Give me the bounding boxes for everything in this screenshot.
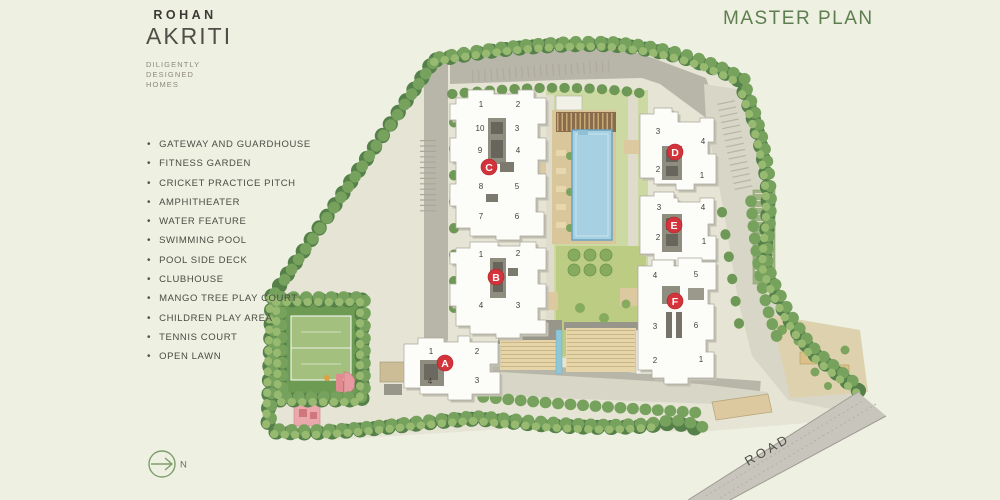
unit-number: 3 [657, 203, 662, 212]
unit-number: 10 [476, 124, 485, 133]
unit-number: 5 [515, 182, 520, 191]
building-marker-b: B [488, 269, 504, 285]
unit-number: 1 [699, 355, 704, 364]
unit-number: 4 [428, 377, 433, 386]
brand-logo: ROHAN AKRITI DILIGENTLY DESIGNED HOMES [146, 8, 224, 90]
unit-number: 4 [479, 301, 484, 310]
building-marker-f: F [667, 293, 683, 309]
unit-number: 9 [478, 146, 483, 155]
building-marker-d: D [667, 144, 683, 160]
amenity-item: CLUBHOUSE [147, 274, 311, 285]
compass-north-label: N [180, 460, 187, 471]
unit-number: 4 [701, 203, 706, 212]
unit-number: 3 [653, 322, 658, 331]
svg-text:B: B [492, 272, 500, 284]
amenity-item: WATER FEATURE [147, 216, 311, 227]
svg-text:E: E [670, 220, 677, 232]
unit-number: 2 [475, 347, 480, 356]
unit-number: 3 [656, 127, 661, 136]
unit-number: 1 [479, 100, 484, 109]
amenity-item: OPEN LAWN [147, 351, 311, 362]
amenity-item: FITNESS GARDEN [147, 158, 311, 169]
building-marker-a: A [437, 355, 453, 371]
amenity-item: AMPHITHEATER [147, 197, 311, 208]
unit-number: 4 [516, 146, 521, 155]
amenity-item: GATEWAY AND GUARDHOUSE [147, 139, 311, 150]
unit-number: 2 [516, 100, 521, 109]
unit-number: 6 [515, 212, 520, 221]
master-plan-page: 1 2 4 3 1 2 4 3 1 2 10 3 9 4 8 5 7 6 3 4… [0, 0, 1000, 500]
unit-number: 4 [653, 271, 658, 280]
brand-tagline: DILIGENTLY DESIGNED HOMES [146, 60, 224, 90]
amenities-list: GATEWAY AND GUARDHOUSEFITNESS GARDENCRIC… [147, 139, 311, 371]
amenity-item: POOL SIDE DECK [147, 255, 311, 266]
page-title: MASTER PLAN [723, 8, 874, 30]
brand-name: ROHAN [146, 8, 224, 22]
unit-number: 5 [694, 270, 699, 279]
guardhouse [380, 362, 406, 382]
water-feature [556, 330, 562, 374]
amenity-item: CRICKET PRACTICE PITCH [147, 178, 311, 189]
unit-number: 2 [653, 356, 658, 365]
amenity-item: MANGO TREE PLAY COURT [147, 293, 311, 304]
building-c-footprint [450, 90, 546, 240]
swimming-pool [572, 130, 612, 240]
svg-text:C: C [485, 162, 493, 174]
unit-number: 1 [702, 237, 707, 246]
unit-number: 2 [656, 165, 661, 174]
unit-number: 8 [479, 182, 484, 191]
unit-number: 1 [700, 171, 705, 180]
unit-number: 2 [656, 233, 661, 242]
unit-number: 3 [515, 124, 520, 133]
unit-number: 7 [479, 212, 484, 221]
amenity-item: CHILDREN PLAY AREA [147, 313, 311, 324]
unit-number: 1 [429, 347, 434, 356]
amenity-item: TENNIS COURT [147, 332, 311, 343]
svg-text:A: A [441, 358, 449, 370]
svg-text:D: D [671, 147, 679, 159]
building-marker-e: E [666, 217, 682, 233]
north-compass: N [149, 451, 187, 477]
unit-number: 1 [479, 250, 484, 259]
svg-text:F: F [672, 296, 679, 308]
unit-number: 4 [701, 137, 706, 146]
amenity-item: SWIMMING POOL [147, 235, 311, 246]
unit-number: 3 [516, 301, 521, 310]
unit-number: 3 [475, 376, 480, 385]
brand-product-name: AKRITI [146, 23, 224, 50]
unit-number: 6 [694, 321, 699, 330]
amphitheater [336, 372, 355, 394]
unit-number: 2 [516, 249, 521, 258]
building-marker-c: C [481, 159, 497, 175]
